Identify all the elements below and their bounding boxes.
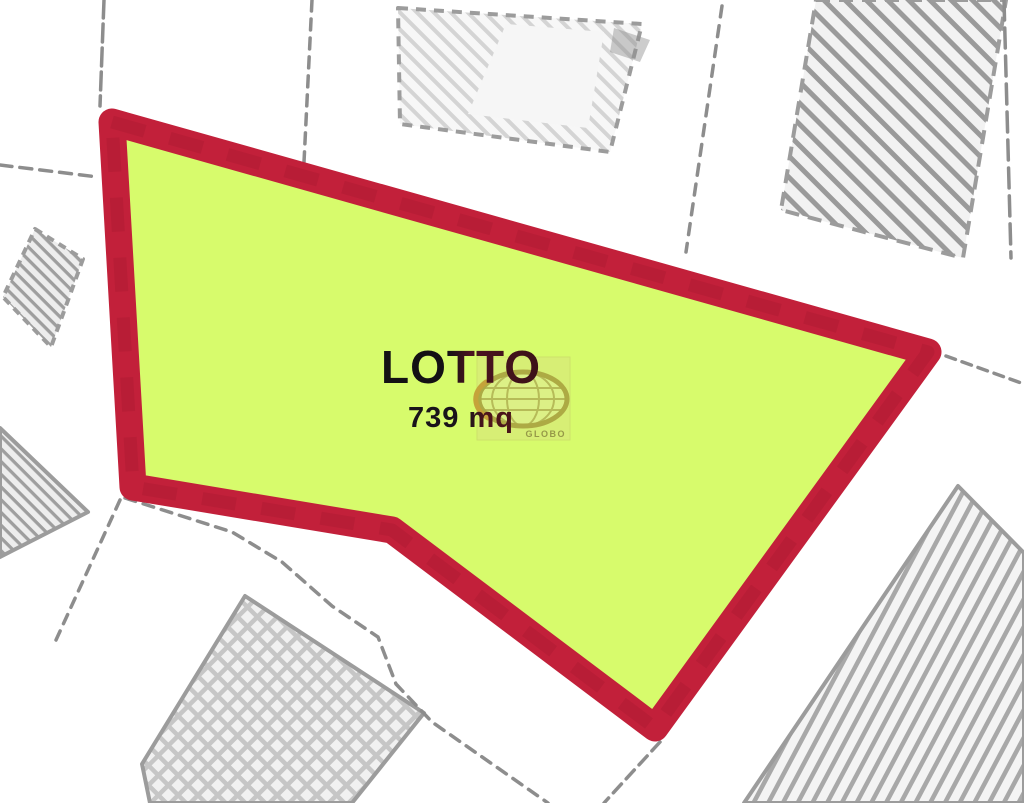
watermark-label: GLOBO <box>526 429 567 439</box>
map-canvas: GLOBO LOTTO 739 mq <box>0 0 1024 803</box>
lot-label: LOTTO <box>381 341 541 393</box>
lot-area-label: 739 mq <box>408 402 514 434</box>
cadastral-map: GLOBO LOTTO 739 mq <box>0 0 1024 803</box>
